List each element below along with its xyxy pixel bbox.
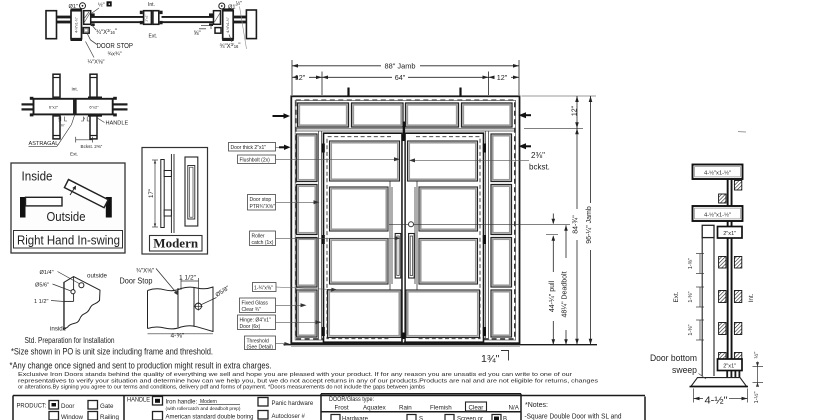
svg-text:4-½"x1-½": 4-½"x1-½" <box>704 212 731 219</box>
svg-text:84-¾": 84-¾" <box>573 215 580 234</box>
svg-text:Autocloser #: Autocloser # <box>272 414 306 420</box>
svg-text:¾"X3⁄16": ¾"X3⁄16" <box>96 28 117 36</box>
svg-text:½": ½" <box>236 0 242 7</box>
svg-text:⅝": ⅝" <box>194 31 201 37</box>
svg-text:HANDLE: HANDLE <box>127 397 150 404</box>
svg-text:x: x <box>58 117 60 121</box>
svg-text:B: B <box>503 417 507 420</box>
svg-text:catch (1x): catch (1x) <box>252 240 274 246</box>
svg-text:S: S <box>419 417 423 420</box>
svg-text:Door Stop: Door Stop <box>120 276 153 286</box>
svg-text:Threshold: Threshold <box>247 338 269 344</box>
svg-text:Ext.: Ext. <box>70 152 78 157</box>
svg-text:1-⅜": 1-⅜" <box>688 258 694 269</box>
svg-text:1 1/2": 1 1/2" <box>179 275 197 282</box>
svg-text:PTR¾"X⅝": PTR¾"X⅝" <box>250 204 275 210</box>
svg-text:Flushbolt (2x): Flushbolt (2x) <box>240 158 271 164</box>
svg-text:Iron handle:: Iron handle: <box>166 400 198 406</box>
svg-text:(with rollercatch and deadbolt: (with rollercatch and deadbolt prep) <box>166 406 242 411</box>
svg-text:Int.: Int. <box>148 2 155 8</box>
svg-text:2"x1": 2"x1" <box>723 364 736 370</box>
svg-text:¾"X⅝": ¾"X⅝" <box>136 269 154 275</box>
svg-text:Roller: Roller <box>252 233 265 239</box>
svg-text:Door: Door <box>61 403 74 410</box>
svg-text:Ext.: Ext. <box>673 291 680 302</box>
svg-text:Ø1/4": Ø1/4" <box>40 270 54 276</box>
svg-text:17": 17" <box>148 189 155 198</box>
svg-text:Int.: Int. <box>72 87 78 92</box>
svg-text:Gate: Gate <box>100 403 114 410</box>
svg-text:-Square Double Door with SL an: -Square Double Door with SL and <box>525 411 622 420</box>
svg-text:representatives to verify your: representatives to verify your situation… <box>18 378 598 384</box>
svg-text:Right Hand In-swing: Right Hand In-swing <box>17 233 120 248</box>
svg-text:½": ½" <box>98 2 105 9</box>
svg-text:1-⅜": 1-⅜" <box>688 324 694 335</box>
svg-text:2⅜": 2⅜" <box>531 151 545 160</box>
svg-text:Int.: Int. <box>748 293 755 302</box>
svg-text:12": 12" <box>295 73 306 82</box>
svg-text:88" Jamb: 88" Jamb <box>385 61 416 70</box>
svg-text:4-½"x1-¾": 4-½"x1-¾" <box>75 16 79 33</box>
svg-text:Aquatex: Aquatex <box>363 405 387 412</box>
svg-text:inside: inside <box>50 326 67 333</box>
svg-text:¾"X3⁄16": ¾"X3⁄16" <box>220 42 241 50</box>
svg-text:Window: Window <box>61 414 84 420</box>
svg-text:Inside: Inside <box>22 170 53 184</box>
svg-text:1 1/2": 1 1/2" <box>34 299 48 305</box>
svg-text:Rain: Rain <box>399 405 412 412</box>
svg-text:(See Detail): (See Detail) <box>247 345 274 351</box>
svg-text:Door stop: Door stop <box>250 197 272 203</box>
svg-text:½": ½" <box>753 352 760 359</box>
svg-text:4-½"x1-½": 4-½"x1-½" <box>704 170 731 177</box>
svg-text:Ø5/6": Ø5/6" <box>35 283 49 289</box>
svg-text:6"x2": 6"x2" <box>89 105 99 110</box>
svg-text:1-¾"x⅝": 1-¾"x⅝" <box>254 285 273 291</box>
svg-text:HANDLE: HANDLE <box>106 121 129 127</box>
svg-text:*Size shown in PO is unit size: *Size shown in PO is unit size including… <box>11 346 213 357</box>
svg-text:Door (6x): Door (6x) <box>240 324 261 330</box>
svg-text:Frost: Frost <box>335 405 349 412</box>
svg-text:64": 64" <box>395 73 406 82</box>
svg-text:96-¼" Jamb: 96-¼" Jamb <box>586 206 593 244</box>
svg-text:6"x2": 6"x2" <box>49 105 59 110</box>
svg-text:Bckst. 2⅜": Bckst. 2⅜" <box>81 144 103 149</box>
svg-text:Hardware: Hardware <box>342 417 369 420</box>
svg-text:Modern: Modern <box>153 236 199 251</box>
svg-text:N/A: N/A <box>509 405 520 412</box>
svg-text:12": 12" <box>572 105 579 116</box>
svg-text:Flemish: Flemish <box>430 405 452 412</box>
svg-text:Door thick 2"x1": Door thick 2"x1" <box>231 145 267 151</box>
svg-text:x: x <box>84 117 86 121</box>
svg-text:2"x1": 2"x1" <box>145 15 149 22</box>
svg-text:Exclusive Iron Doors stands be: Exclusive Iron Doors stands behind the q… <box>18 372 572 378</box>
svg-text:1-½": 1-½" <box>753 391 760 403</box>
svg-text:*Any change once signed and se: *Any change once signed and sent to prod… <box>10 359 272 370</box>
svg-text:Clear ¾": Clear ¾" <box>242 307 262 313</box>
svg-text:American standard double borin: American standard double boring <box>166 415 254 420</box>
svg-text:¾x¾": ¾x¾" <box>108 52 122 58</box>
svg-text:Panic hardware: Panic hardware <box>272 401 314 407</box>
svg-text:outside: outside <box>87 272 108 279</box>
svg-text:⅞": ⅞" <box>61 124 66 128</box>
svg-text:44-¼" pull: 44-¼" pull <box>549 280 556 312</box>
svg-text:sweep: sweep <box>672 365 697 375</box>
svg-text:Ø1": Ø1" <box>69 4 78 10</box>
svg-text:bckst.: bckst. <box>529 163 550 172</box>
svg-text:Std. Preparation for Installat: Std. Preparation for Installation <box>25 336 115 345</box>
svg-text:DOOR STOP: DOOR STOP <box>97 41 134 50</box>
svg-text:PRODUCT:: PRODUCT: <box>17 403 47 410</box>
svg-text:Ext.: Ext. <box>149 34 158 40</box>
svg-text:48¼" Deadbolt: 48¼" Deadbolt <box>561 271 568 317</box>
svg-text:1¾": 1¾" <box>481 353 500 365</box>
svg-text:¼"X⅝": ¼"X⅝" <box>88 60 105 66</box>
svg-text:Hinge: Ø4"x1": Hinge: Ø4"x1" <box>240 317 272 323</box>
svg-text:Screen or: Screen or <box>457 417 483 420</box>
svg-text:or alterations.By signing you: or alterations.By signing you agree to o… <box>18 385 425 391</box>
svg-text:Door bottom: Door bottom <box>650 353 697 363</box>
svg-text:*Notes:: *Notes: <box>525 402 548 409</box>
svg-text:4-½"x1-¾": 4-½"x1-¾" <box>226 16 230 33</box>
svg-text:Railing: Railing <box>100 414 119 420</box>
svg-text:4-½": 4-½" <box>705 395 728 407</box>
svg-text:4-⅝": 4-⅝" <box>171 333 185 340</box>
svg-text:Outside: Outside <box>47 210 86 224</box>
svg-text:Fixed Glass: Fixed Glass <box>242 300 269 306</box>
svg-text:12": 12" <box>497 73 508 82</box>
svg-text:Clear: Clear <box>469 404 484 411</box>
svg-text:DOOR/Glass type:: DOOR/Glass type: <box>329 396 374 403</box>
svg-text:1-⅜": 1-⅜" <box>688 291 694 302</box>
svg-text:2"x1": 2"x1" <box>723 231 736 237</box>
